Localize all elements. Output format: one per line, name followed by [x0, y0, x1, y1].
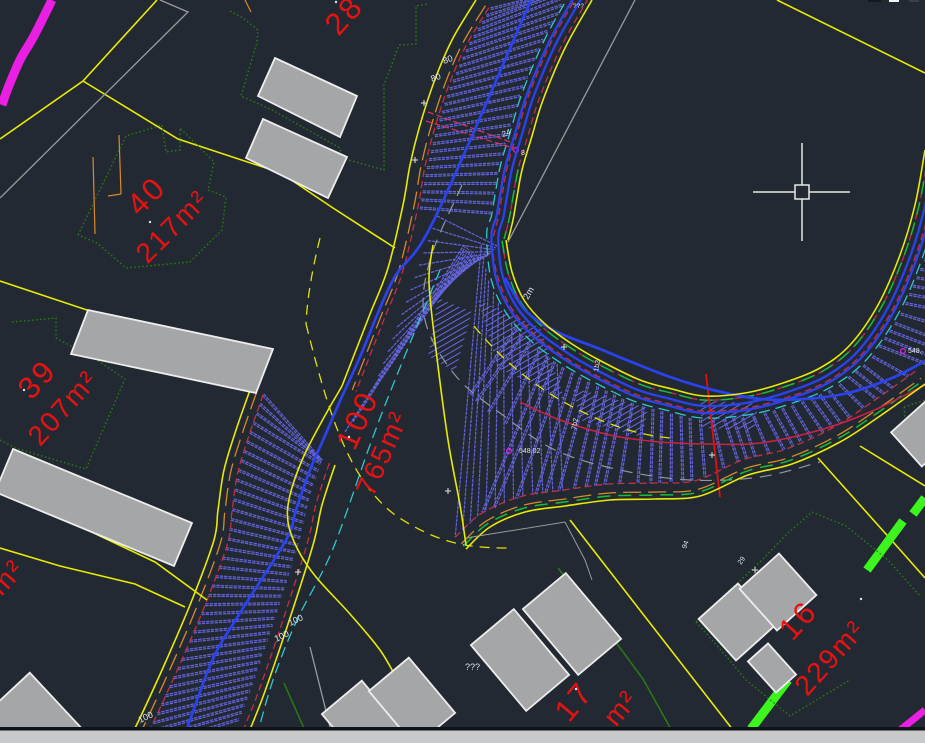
svg-text:???: ???	[465, 662, 480, 672]
svg-text:???: ???	[573, 3, 584, 10]
svg-text:8: 8	[521, 150, 525, 157]
svg-text:548.: 548.	[908, 348, 922, 355]
svg-text:548.02: 548.02	[519, 448, 541, 455]
